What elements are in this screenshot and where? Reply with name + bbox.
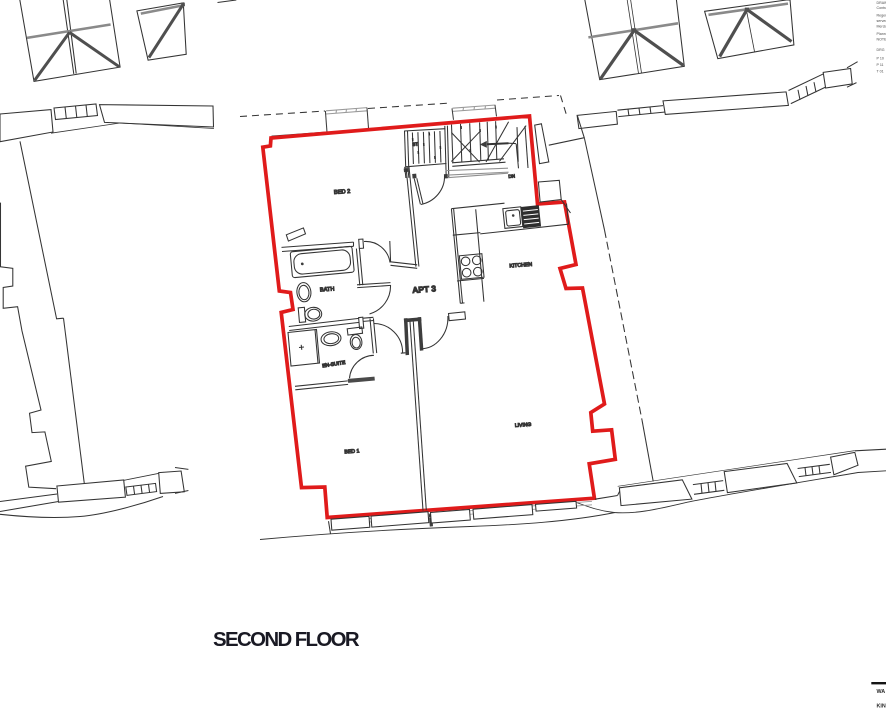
svg-text:KIN: KIN	[877, 704, 886, 710]
svg-text:APT 3: APT 3	[412, 283, 437, 295]
svg-text:Planning: Planning	[877, 32, 886, 36]
svg-text:NOTES: NOTES	[877, 38, 886, 42]
svg-text:WA: WA	[877, 689, 886, 695]
svg-text:KITCHEN: KITCHEN	[509, 262, 532, 270]
svg-text:DRG: DRG	[877, 48, 885, 52]
svg-text:Contract: Contract	[877, 6, 886, 10]
svg-text:EN-SUITE: EN-SUITE	[322, 360, 347, 370]
svg-text:SECOND FLOOR: SECOND FLOOR	[213, 629, 360, 651]
svg-text:Regents: Regents	[877, 14, 886, 18]
svg-text:P 10: P 10	[877, 57, 884, 61]
svg-text:T 01: T 01	[877, 70, 884, 74]
svg-text:BED 1: BED 1	[344, 448, 359, 455]
svg-text:ST: ST	[412, 141, 418, 147]
svg-text:LIVING: LIVING	[515, 422, 532, 429]
svg-text:DN: DN	[508, 173, 515, 179]
svg-text:BED 2: BED 2	[334, 189, 351, 196]
svg-text:BATH: BATH	[320, 286, 335, 293]
svg-text:DRAWN: DRAWN	[877, 1, 886, 5]
svg-text:Mercia: Mercia	[877, 25, 886, 29]
svg-text:P 11: P 11	[877, 63, 884, 67]
svg-text:served: served	[877, 19, 886, 23]
